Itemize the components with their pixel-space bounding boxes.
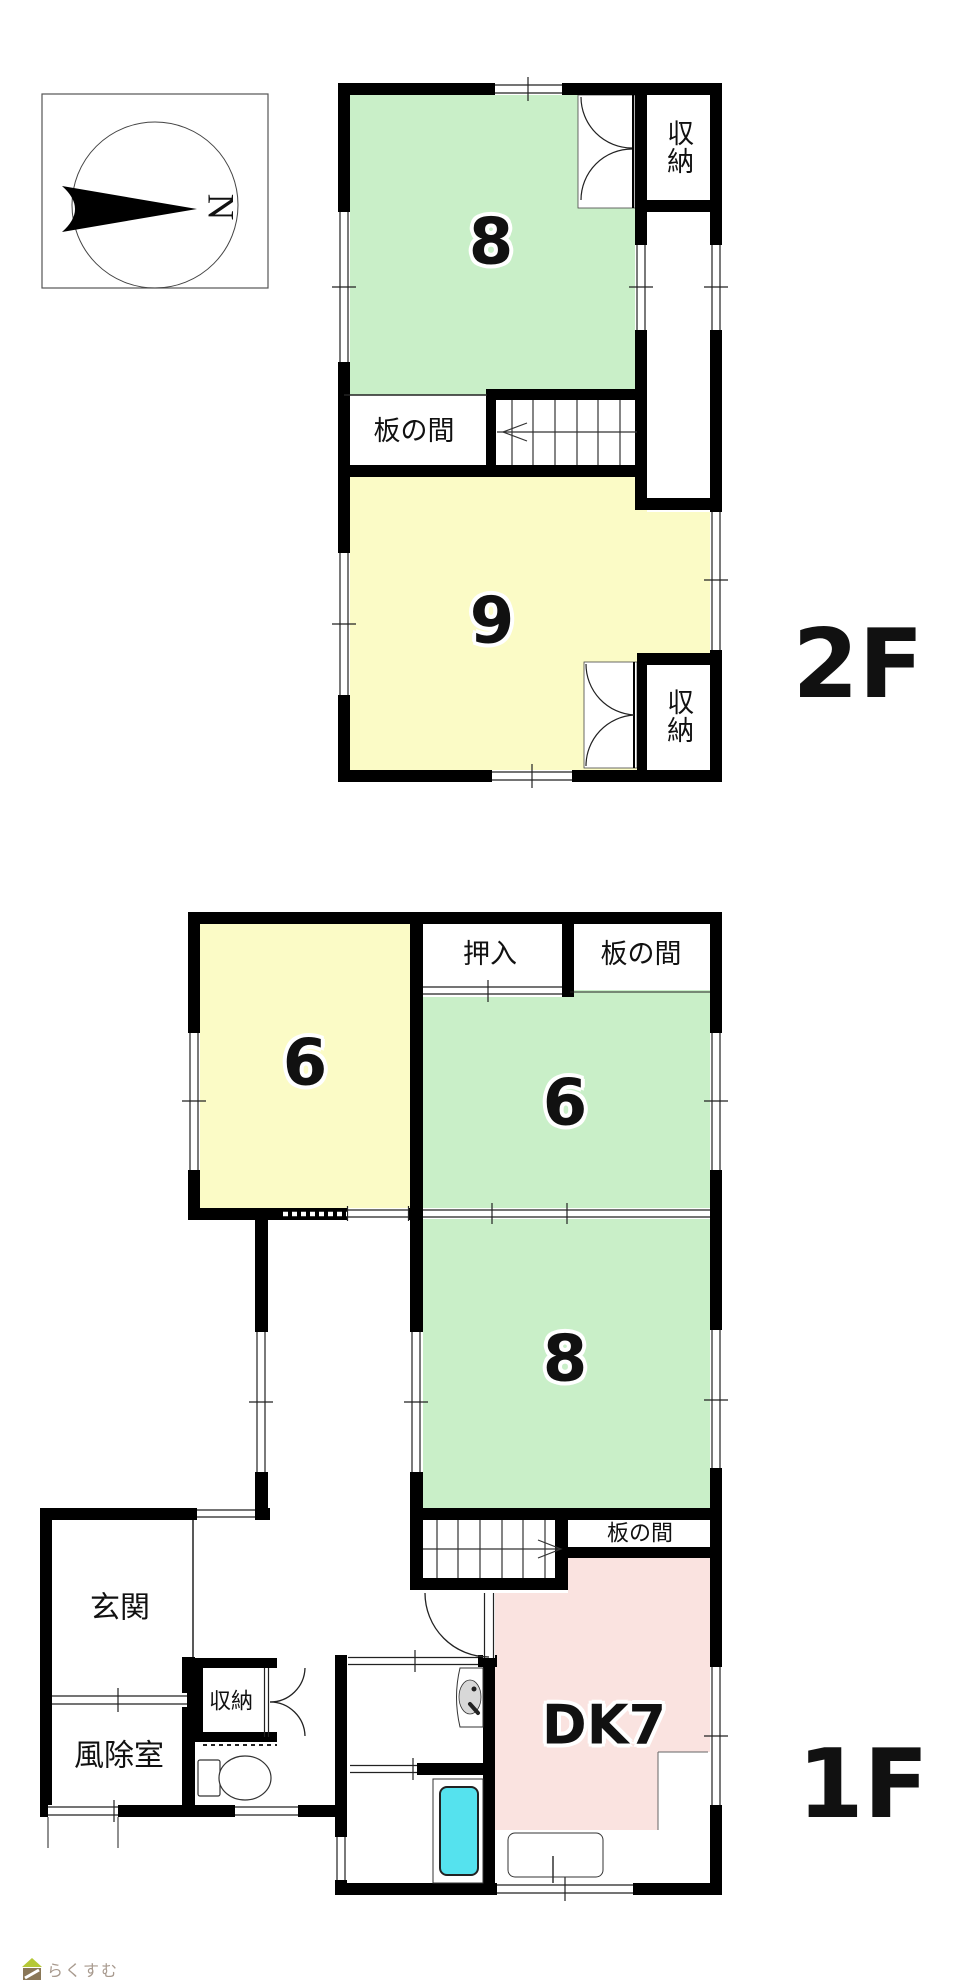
toilet-icon	[219, 1756, 271, 1800]
room-8-2f-label: 8	[469, 209, 514, 276]
compass	[42, 94, 268, 288]
rakusumu-logo-icon	[22, 1958, 42, 1980]
fujoshitsu-label: 風除室	[74, 1740, 164, 1772]
room-9-2f-label: 9	[470, 588, 515, 655]
itanoma-1f-north-label: 板の間	[601, 940, 682, 968]
watermark-text: らくすむ	[47, 1957, 119, 1981]
closet-door-arc-icon	[270, 1668, 305, 1702]
stairs-2f	[497, 400, 637, 465]
floor-plan-page: N 8 9 板の間 収納 収納 2F 6 6 8 押入 板の間 板の間 DK7 …	[0, 0, 956, 1985]
watermark: らくすむ	[22, 1957, 119, 1981]
closet-2f-top-label: 収納	[664, 119, 692, 175]
itanoma-1f-south-label: 板の間	[607, 1521, 673, 1544]
washbasin-icon	[459, 1680, 481, 1714]
dk-label: DK7	[542, 1698, 666, 1755]
room-9-2f-area-east	[635, 512, 710, 653]
room-6-west-label: 6	[283, 1030, 328, 1097]
closet-1f-label: 収納	[209, 1689, 253, 1712]
closet-2f-bottom-label: 収納	[664, 688, 692, 744]
itanoma-2f-label: 板の間	[374, 417, 455, 445]
stairs-1f	[423, 1520, 561, 1578]
oshiire-label: 押入	[463, 940, 517, 968]
room-6-east-label: 6	[543, 1070, 588, 1137]
floor-2f-title: 2F	[793, 616, 924, 716]
genkan-label: 玄関	[90, 1592, 150, 1624]
kitchen-counter-icon	[508, 1833, 603, 1877]
compass-north-label: N	[200, 194, 239, 221]
floor-plan-drawing	[0, 0, 956, 1985]
toilet-tank	[198, 1760, 220, 1796]
floor-1f-title: 1F	[798, 1736, 929, 1836]
room-8-1f-label: 8	[543, 1326, 588, 1393]
bathtub-icon	[440, 1787, 478, 1875]
hinged-door-arc-icon	[425, 1593, 489, 1657]
closet-door-arc-icon	[270, 1702, 305, 1736]
